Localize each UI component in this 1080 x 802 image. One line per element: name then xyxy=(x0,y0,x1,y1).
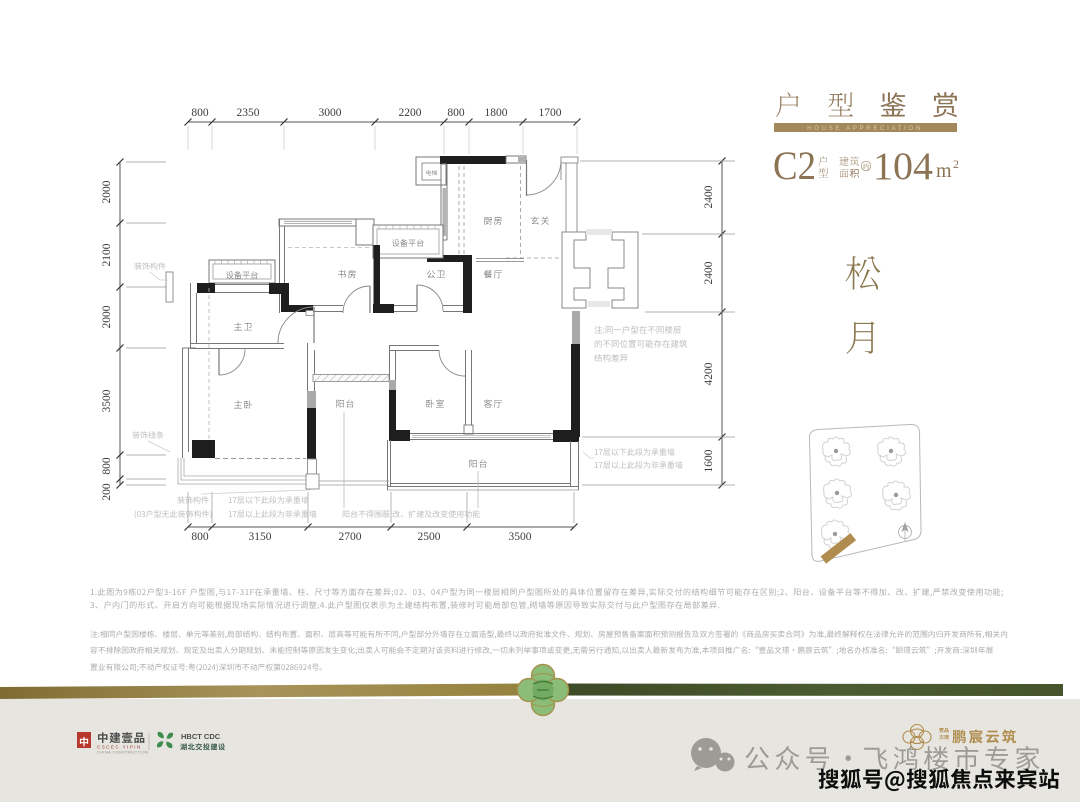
svg-text:2200: 2200 xyxy=(399,107,422,119)
svg-text:2400: 2400 xyxy=(703,185,715,208)
svg-text:2500: 2500 xyxy=(418,531,441,543)
svg-text:800: 800 xyxy=(191,531,209,543)
svg-text:104: 104 xyxy=(873,145,933,188)
svg-text:200: 200 xyxy=(101,483,113,501)
svg-text:1600: 1600 xyxy=(703,449,715,472)
svg-text:2100: 2100 xyxy=(101,243,113,266)
svg-text:2000: 2000 xyxy=(101,305,113,328)
svg-text:2400: 2400 xyxy=(703,261,715,284)
svg-text:3150: 3150 xyxy=(249,531,272,543)
svg-text:3500: 3500 xyxy=(509,531,532,543)
svg-text:1700: 1700 xyxy=(539,107,562,119)
svg-text:m: m xyxy=(936,160,952,182)
svg-text:3000: 3000 xyxy=(319,107,342,119)
svg-text:2350: 2350 xyxy=(237,107,260,119)
svg-text:2700: 2700 xyxy=(339,531,362,543)
svg-text:3500: 3500 xyxy=(101,389,113,412)
svg-text:800: 800 xyxy=(191,107,209,119)
svg-text:800: 800 xyxy=(101,457,113,475)
svg-text:2000: 2000 xyxy=(101,180,113,203)
svg-text:CHINA CONSTRUCTION: CHINA CONSTRUCTION xyxy=(97,751,149,755)
svg-text:800: 800 xyxy=(447,107,465,119)
svg-text:2: 2 xyxy=(953,157,959,171)
svg-text:HBCT CDC: HBCT CDC xyxy=(181,732,221,741)
svg-text:4200: 4200 xyxy=(703,362,715,385)
svg-text:CSCEC YIPIN: CSCEC YIPIN xyxy=(97,745,142,750)
svg-text:HOUSE APPRECIATION: HOUSE APPRECIATION xyxy=(807,125,923,132)
svg-text:1800: 1800 xyxy=(485,107,508,119)
svg-text:C2: C2 xyxy=(773,143,816,188)
